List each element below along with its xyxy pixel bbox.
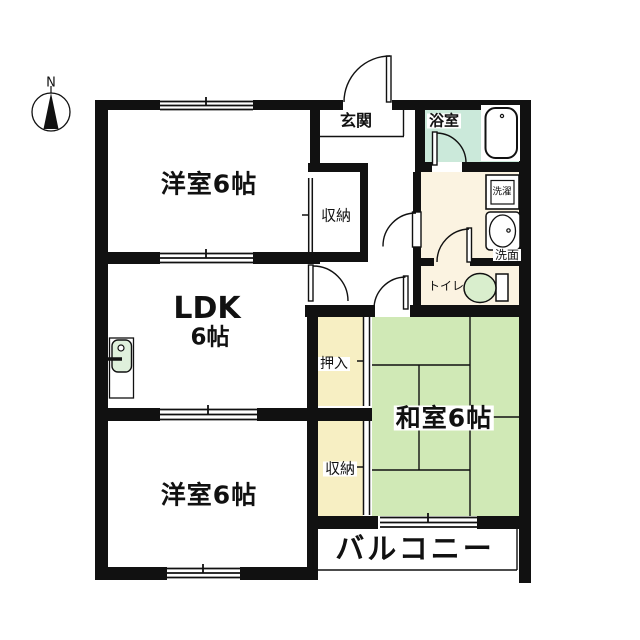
label-laundry: 洗濯 — [492, 187, 511, 197]
room-label-ldk: LDK — [173, 294, 240, 324]
washroom-door-leaf — [413, 212, 422, 247]
japanese-room-door-leaf — [404, 276, 409, 309]
slider-symbol — [160, 405, 257, 420]
room-label-closet-top: 収納 — [321, 209, 351, 224]
room-label-japanese-room: 和室6帖 — [394, 406, 494, 431]
room-label-oshiire: 押入 — [318, 357, 350, 371]
wash-basin — [490, 215, 516, 247]
north-label: N — [46, 77, 56, 90]
room-label-washroom: 洗面 — [493, 249, 521, 261]
room-label-balcony: バルコニー — [335, 535, 494, 564]
ldk-door-arc — [313, 266, 348, 301]
room-label-toilet: トイレ — [428, 280, 464, 292]
toilet-tank — [496, 274, 508, 301]
ldk-door-leaf — [309, 265, 314, 301]
room-label-closet-bottom: 収納 — [323, 462, 357, 477]
room-label-bathroom: 浴室 — [427, 114, 461, 129]
room-label-western-bottom: 洋室6帖 — [161, 483, 257, 508]
room-label-western-top: 洋室6帖 — [161, 172, 257, 197]
entrance-door-leaf — [387, 56, 392, 102]
window-symbol — [167, 564, 240, 578]
slider-symbol — [160, 249, 253, 263]
fusuma-symbol — [357, 315, 370, 406]
bathtub — [486, 108, 518, 158]
japanese-room-door-arc — [374, 277, 406, 309]
kitchen-faucet — [118, 345, 124, 351]
toilet-door-leaf — [467, 228, 472, 262]
window-symbol — [160, 97, 253, 110]
bath-door-arc — [437, 133, 466, 163]
room-label-entrance: 玄関 — [340, 113, 372, 129]
floor-plan: N 洋室6帖 収納 玄関 浴室 洗濯 洗面 トイレ LDK 6帖 押入 和室6帖… — [0, 0, 640, 640]
washroom-door-arc — [383, 213, 416, 247]
slider-symbol — [380, 513, 477, 527]
north-arrow-icon — [32, 86, 70, 131]
room-label-ldk-size: 6帖 — [190, 327, 229, 350]
fusuma-symbol — [357, 421, 370, 515]
plan-linework — [0, 0, 640, 640]
toilet-door-arc — [437, 229, 469, 262]
closet-door-symbol — [302, 178, 312, 252]
entrance-door-arc — [344, 56, 390, 102]
bath-door-leaf — [433, 132, 438, 165]
toilet-bowl — [464, 274, 496, 303]
